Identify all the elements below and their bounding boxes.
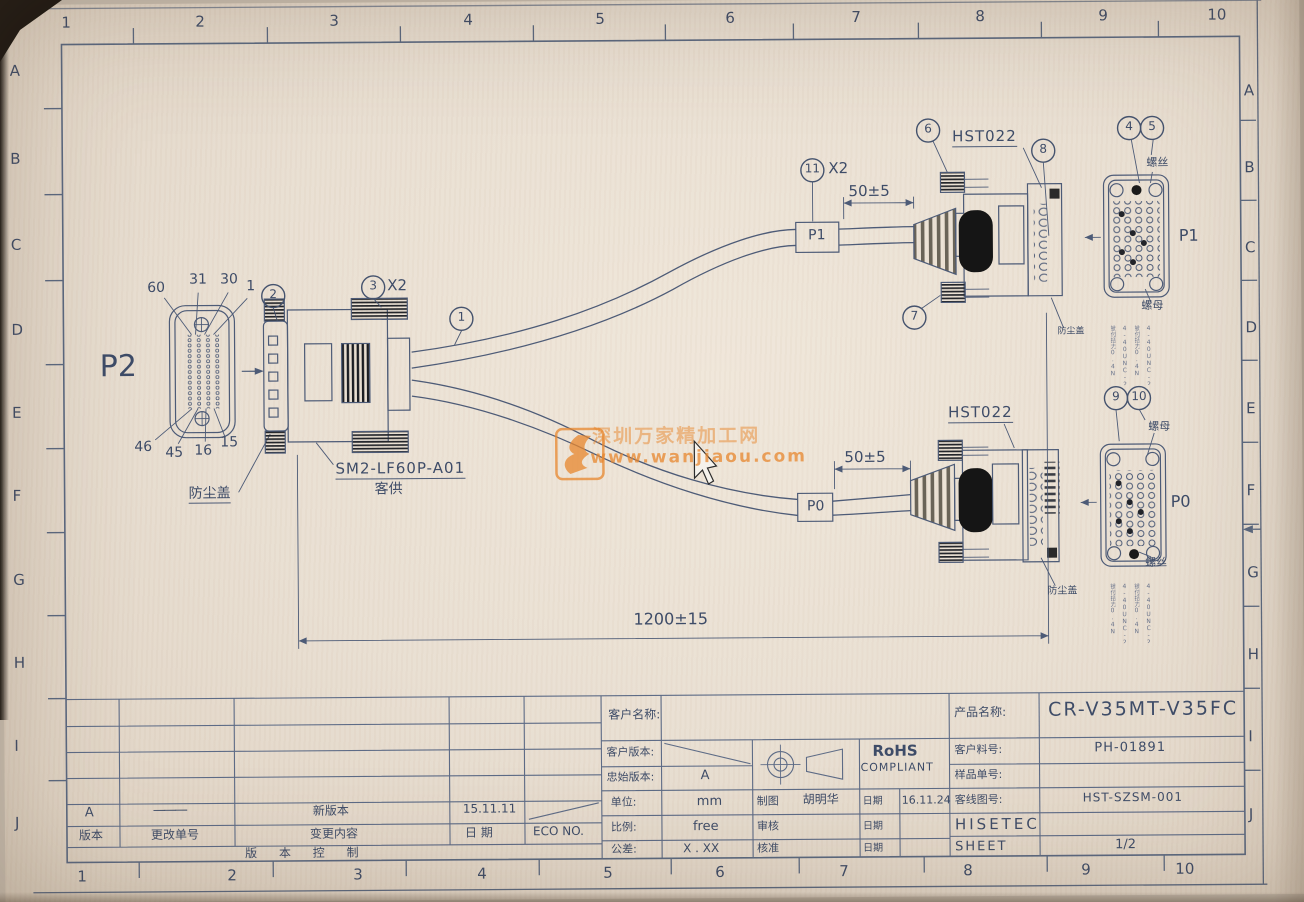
ruler-top-10: 10 [1207,6,1226,23]
p2-pin-16: 16 [194,444,212,460]
drawing-no-label: 客线图号: [955,794,1003,806]
p0-cable-tag: P0 [800,499,832,515]
ruler-right-j: J [1249,806,1254,823]
drawing-sheet: 1 2 3 4 5 6 7 8 9 10 1 2 3 4 5 6 7 8 9 1… [0,0,1304,902]
p0-face-view [1080,444,1166,567]
rev-header-date: 日 期 [465,827,493,840]
p0-note-4: 4-40UNC-2B [1144,583,1151,643]
ruler-bottom-7: 7 [839,863,849,880]
rev-row-description: 新版本 [313,805,349,818]
sample-no-label: 样品单号: [955,769,1003,781]
ruler-bottom-5: 5 [603,865,613,882]
rev-footer: 版 本 控 制 [245,846,368,860]
photo-of-drawing: 1 2 3 4 5 6 7 8 9 10 1 2 3 4 5 6 7 8 9 1… [0,0,1304,902]
p0-dust-cover-label: 防尘盖 [1047,585,1077,596]
ruler-top-5: 5 [595,11,605,28]
p1-cable-tag: P1 [801,228,833,244]
ruler-bottom-1: 1 [77,868,87,885]
ruler-top-1: 1 [61,15,71,32]
balloon-8: 8 [1031,143,1055,156]
p1-face-label: P1 [1179,227,1199,245]
ruler-right-a: A [1244,82,1254,99]
sheet-value: 1/2 [1115,838,1136,852]
company-name: HISETEC [955,816,1040,833]
p2-pin-31: 31 [189,273,207,289]
ruler-top-3: 3 [329,13,339,30]
drawn-date: 16.11.24 [902,794,951,806]
ruler-bottom-9: 9 [1081,861,1091,878]
customer-pn-label: 客户料号: [954,744,1002,756]
ruler-left-e: E [12,405,22,422]
ruler-left-a: A [10,63,20,80]
ruler-top-6: 6 [725,10,735,27]
ruler-right-c: C [1245,239,1256,256]
ruler-bottom-10: 10 [1175,861,1194,878]
p2-pin-45: 45 [165,446,183,462]
p0-nut-label: 螺母 [1148,421,1170,433]
approved-label: 核准 [757,843,779,855]
balloon-11-qty: X2 [828,160,848,177]
date-label-2: 日期 [863,821,883,832]
p1-note-3: 锁付扭力0.4N [1132,325,1139,385]
scale-label: 比例: [611,822,637,834]
p0-note-2: 4-40UNC-2A [1120,583,1127,643]
p0-face-label: P0 [1171,493,1191,511]
balloon-7: 7 [902,310,926,323]
p2-customer-supplied: 客供 [375,482,403,498]
ruler-left-d: D [11,322,23,339]
p1-screw-label: 螺丝 [1146,157,1168,169]
rev-header-change-no: 更改单号 [151,829,199,843]
balloon-2: 2 [261,288,285,301]
p2-label: P2 [100,350,137,383]
ruler-left-g: G [13,572,25,589]
ruler-right-i: I [1248,728,1253,745]
balloon-10: 10 [1127,390,1151,403]
sheet-label: SHEET [955,840,1008,855]
balloon-3-qty: X2 [387,277,407,294]
balloon-6: 6 [916,122,940,135]
ruler-top-7: 7 [851,9,861,26]
rohs-line2: COMPLIANT [861,761,934,774]
date-label-1: 日期 [863,796,883,807]
ruler-right-b: B [1244,159,1254,176]
balloon-5: 5 [1140,120,1164,133]
p2-part-number: SM2-LF60P-A01 [335,460,465,479]
ruler-bottom-4: 4 [477,866,487,883]
ruler-bottom-8: 8 [963,862,973,879]
balloon-1: 1 [449,311,473,324]
p1-note-4: 4-40UNC-2B [1144,325,1151,385]
p1-note-2: 4-40UNC-2A [1120,325,1127,385]
drawn-by: 胡明华 [803,793,839,806]
rohs-line1: RoHS [872,743,917,760]
p2-pin-46: 46 [134,440,152,456]
ruler-top-4: 4 [463,12,473,29]
p2-pin-15: 15 [220,435,238,451]
balloon-11: 11 [800,162,824,175]
ruler-left-f: F [13,488,22,505]
date-label-3: 日期 [863,843,883,854]
ruler-top-8: 8 [975,8,985,25]
p2-pin-60: 60 [147,281,165,297]
product-name-label: 产品名称: [954,706,1006,720]
origin-rev-label: 忠始版本: [607,771,655,783]
balloon-3: 3 [361,279,385,292]
tolerance-label: 公差: [611,844,637,856]
y-cable [411,227,916,519]
ruler-left-h: H [14,655,25,672]
ruler-top-9: 9 [1098,7,1108,24]
scale-value: free [693,820,719,834]
ruler-bottom-3: 3 [353,866,363,883]
drawn-label: 制图 [757,796,779,808]
rev-row-date: 15.11.11 [463,802,517,816]
ruler-left-c: C [11,237,22,254]
watermark-line2: www.wanjiaou.com [590,447,807,467]
ruler-left-b: B [10,151,20,168]
ruler-bottom-2: 2 [227,867,237,884]
balloon-9: 9 [1104,390,1128,403]
p1-nut-label: 螺母 [1141,300,1163,312]
balloon-4: 4 [1117,120,1141,133]
origin-rev-value: A [701,769,710,783]
ruler-right-d: D [1245,319,1257,336]
rev-row-version: A [85,806,94,820]
checked-label: 审核 [757,821,779,833]
customer-name-label: 客户名称: [608,708,660,722]
rev-header-description: 变更内容 [310,828,358,842]
p0-note-3: 锁付扭力0.4N [1132,583,1139,643]
customer-rev-label: 客户版本: [606,746,654,758]
ruler-left-j: J [15,815,20,832]
rev-header-eco: ECO NO. [533,825,584,839]
drawing-no-value: HST-SZSM-001 [1083,791,1183,805]
p0-note-1: 锁付扭力0.4N [1108,583,1115,643]
p1-dim-50: 50±5 [848,183,889,200]
ruler-right-g: G [1247,564,1259,581]
watermark-line1: 深圳万家精加工网 [592,426,760,448]
p2-pin-30: 30 [220,272,238,288]
p2-pin-1: 1 [246,279,255,294]
p2-dust-cover-label: 防尘盖 [189,486,231,504]
p0-screw-label: 螺丝 [1145,557,1167,569]
unit-value: mm [697,795,722,809]
tolerance-value: X . XX [683,842,719,855]
ruler-right-e: E [1246,400,1256,417]
p1-part-label: HST022 [952,128,1017,147]
product-name-value: CR-V35MT-V35FC [1048,698,1238,720]
ruler-top-2: 2 [195,14,205,31]
ruler-right-f: F [1247,482,1256,499]
ruler-right-h: H [1248,646,1259,663]
customer-pn-value: PH-01891 [1094,741,1166,756]
rev-header-version: 版本 [79,829,103,842]
p1-note-1: 锁付扭力0.4N [1108,325,1115,385]
ruler-bottom-6: 6 [715,864,725,881]
rev-row-change-no: ——— [153,804,186,819]
ruler-left-i: I [14,738,19,755]
p1-dust-cover-label: 防尘盖 [1057,327,1084,337]
p0-dim-50: 50±5 [844,449,885,466]
overall-dim-label: 1200±15 [633,610,708,628]
p0-part-label: HST022 [948,404,1013,423]
unit-label: 单位: [611,797,637,809]
